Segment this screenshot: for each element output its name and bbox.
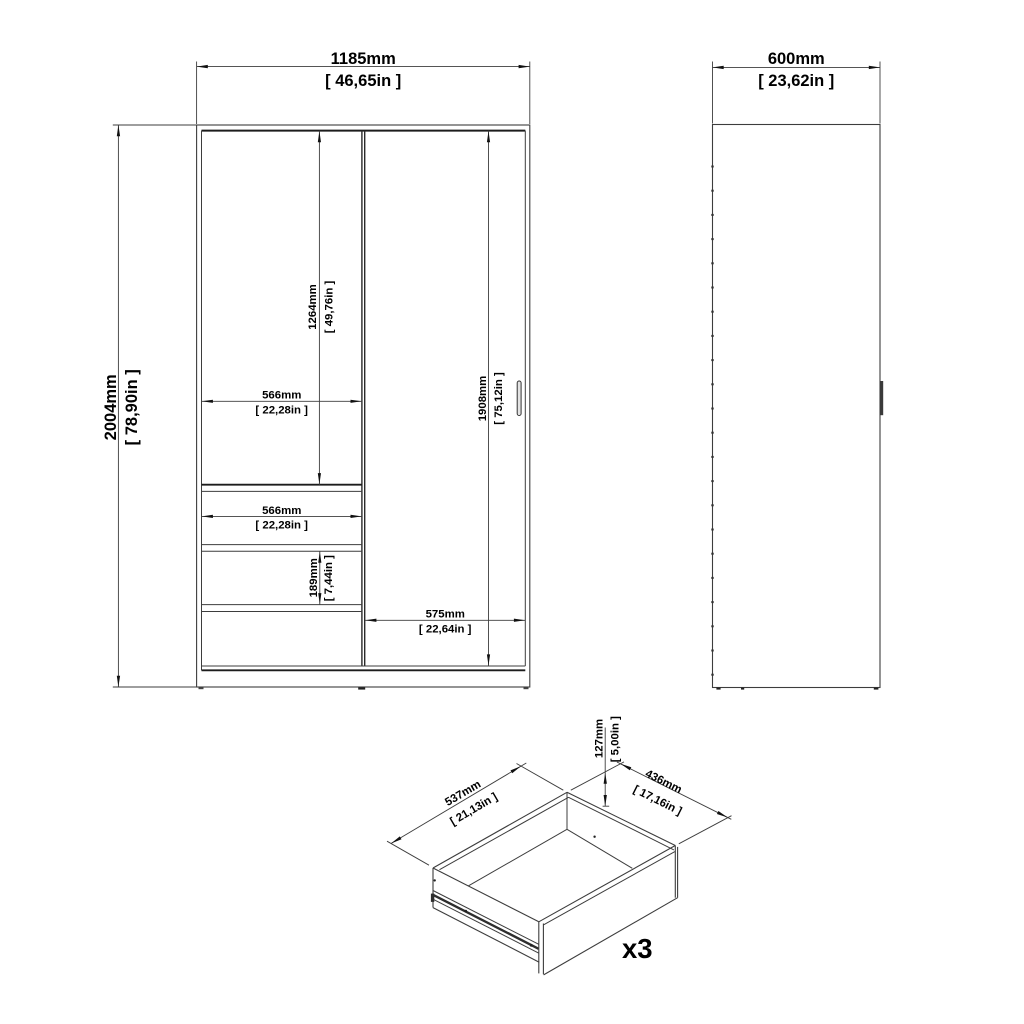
svg-text:[ 5,00in ]: [ 5,00in ]: [610, 716, 622, 762]
svg-text:127mm: 127mm: [594, 719, 606, 758]
svg-text:[ 22,28in ]: [ 22,28in ]: [255, 520, 308, 532]
svg-text:x3: x3: [622, 933, 653, 964]
svg-text:189mm: 189mm: [308, 558, 320, 597]
svg-text:566mm: 566mm: [262, 505, 301, 517]
svg-text:575mm: 575mm: [426, 609, 465, 621]
svg-text:1185mm: 1185mm: [331, 50, 396, 68]
svg-text:2004mm: 2004mm: [102, 374, 120, 440]
svg-text:600mm: 600mm: [768, 50, 825, 68]
svg-text:1908mm: 1908mm: [477, 376, 489, 422]
svg-text:[ 75,12in ]: [ 75,12in ]: [493, 372, 505, 425]
svg-text:[ 78,90in ]: [ 78,90in ]: [123, 369, 141, 445]
svg-text:1264mm: 1264mm: [307, 284, 319, 330]
svg-text:[ 49,76in ]: [ 49,76in ]: [324, 281, 336, 334]
svg-text:[ 22,64in ]: [ 22,64in ]: [419, 623, 472, 635]
svg-text:[ 23,62in ]: [ 23,62in ]: [758, 72, 834, 90]
svg-text:[ 46,65in ]: [ 46,65in ]: [325, 72, 401, 90]
svg-text:[ 7,44in ]: [ 7,44in ]: [323, 555, 335, 601]
svg-text:566mm: 566mm: [262, 390, 301, 402]
svg-text:[ 22,28in ]: [ 22,28in ]: [255, 404, 308, 416]
